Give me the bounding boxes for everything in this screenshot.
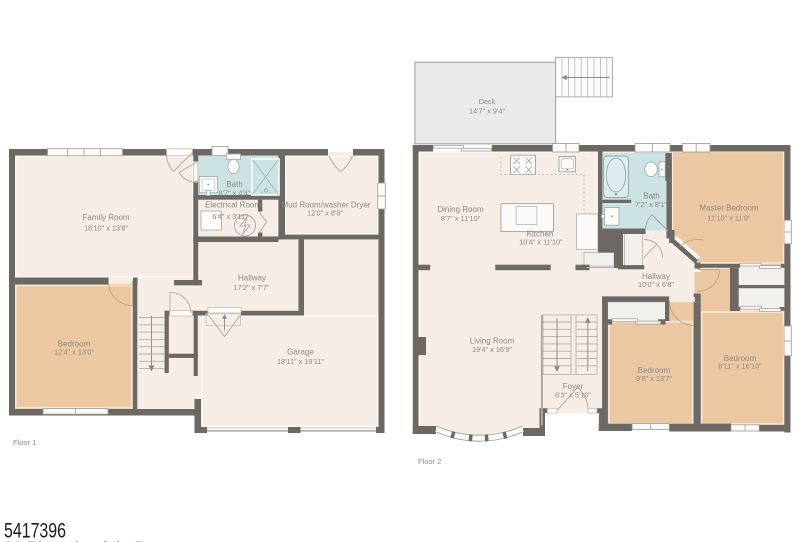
svg-text:8'7" x 11'10": 8'7" x 11'10" [441, 214, 481, 223]
svg-text:Floor 1: Floor 1 [13, 438, 36, 447]
svg-text:8'11" x 16'10": 8'11" x 16'10" [718, 362, 762, 371]
svg-text:Garage: Garage [287, 348, 314, 357]
svg-text:Deck: Deck [479, 97, 496, 106]
svg-text:Master Bedroom: Master Bedroom [699, 204, 758, 213]
svg-text:8'7" x 4'4": 8'7" x 4'4" [219, 189, 251, 198]
svg-text:6'4" x 3'11": 6'4" x 3'11" [212, 212, 248, 221]
svg-text:6'3" x 5'10": 6'3" x 5'10" [555, 391, 591, 400]
svg-text:10'4" x 11'10": 10'4" x 11'10" [519, 238, 563, 247]
svg-text:7'2" x 8'1": 7'2" x 8'1" [635, 200, 667, 209]
svg-text:17'2" x 7'7": 17'2" x 7'7" [234, 283, 270, 292]
svg-text:14'7" x 9'4": 14'7" x 9'4" [469, 107, 505, 116]
svg-text:18'11" x 19'11": 18'11" x 19'11" [277, 357, 324, 366]
svg-text:Dining Room: Dining Room [437, 205, 484, 214]
svg-text:12'4" x 13'0": 12'4" x 13'0" [54, 348, 94, 357]
svg-text:9'8" x 13'7": 9'8" x 13'7" [636, 374, 672, 383]
svg-text:18'10" x 13'8": 18'10" x 13'8" [84, 224, 128, 233]
svg-text:Electrical Room: Electrical Room [205, 201, 261, 210]
svg-text:Family Room: Family Room [82, 213, 129, 222]
svg-text:11'10" x 11'9": 11'10" x 11'9" [708, 214, 751, 223]
svg-text:12'0" x 8'8": 12'0" x 8'8" [307, 209, 343, 218]
svg-text:28 Bloomingdale Dr: 28 Bloomingdale Dr [3, 538, 153, 542]
svg-text:10'0" x 6'8": 10'0" x 6'8" [638, 280, 674, 289]
svg-text:Floor 2: Floor 2 [418, 457, 441, 466]
svg-text:Hallway: Hallway [238, 274, 266, 283]
svg-text:19'4" x 16'9": 19'4" x 16'9" [472, 345, 512, 354]
